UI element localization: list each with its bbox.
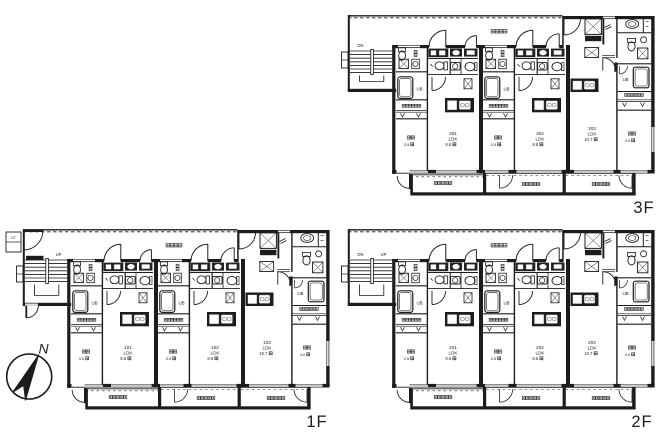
svg-text:1F: 1F	[306, 413, 327, 431]
svg-text:LDK: LDK	[536, 136, 546, 141]
svg-text:201: 201	[449, 345, 457, 350]
svg-text:4.0: 4.0	[625, 352, 631, 357]
svg-text:3.5: 3.5	[404, 356, 410, 361]
svg-text:3.5: 3.5	[166, 356, 172, 361]
svg-text:302: 302	[536, 131, 544, 136]
svg-text:LDK: LDK	[449, 136, 459, 141]
svg-text:101: 101	[124, 345, 132, 350]
svg-text:303: 303	[588, 126, 596, 131]
svg-text:UB: UB	[91, 301, 97, 306]
svg-text:10.7: 10.7	[259, 351, 268, 356]
svg-text:102: 102	[211, 345, 219, 350]
svg-text:LDK: LDK	[449, 350, 459, 355]
svg-text:4.0: 4.0	[300, 352, 306, 357]
svg-text:UT: UT	[11, 236, 17, 240]
svg-text:DN: DN	[357, 252, 363, 257]
svg-text:4.0: 4.0	[625, 138, 631, 143]
svg-text:N: N	[38, 341, 49, 357]
svg-text:UB: UB	[416, 87, 422, 92]
svg-text:LDK: LDK	[211, 350, 221, 355]
svg-text:UB: UB	[622, 291, 628, 296]
svg-text:DN: DN	[357, 43, 363, 48]
svg-text:LDK: LDK	[124, 350, 134, 355]
svg-text:2F: 2F	[631, 413, 652, 431]
svg-text:8.6: 8.6	[120, 356, 126, 361]
svg-text:UP: UP	[381, 252, 387, 257]
svg-text:UB: UB	[503, 87, 509, 92]
svg-text:UB: UB	[297, 291, 303, 296]
svg-text:103: 103	[263, 340, 271, 345]
svg-text:UB: UB	[503, 301, 509, 306]
svg-text:UB: UB	[178, 301, 184, 306]
svg-text:10.7: 10.7	[584, 137, 593, 142]
svg-text:LDK: LDK	[263, 345, 273, 350]
svg-text:301: 301	[449, 131, 457, 136]
svg-text:UB: UB	[416, 301, 422, 306]
svg-text:8.6: 8.6	[532, 142, 538, 147]
svg-text:3.5: 3.5	[79, 356, 85, 361]
svg-text:UP: UP	[56, 252, 62, 257]
svg-text:10.7: 10.7	[584, 351, 593, 356]
svg-text:8.6: 8.6	[532, 356, 538, 361]
svg-text:3.5: 3.5	[491, 142, 497, 147]
svg-text:LDK: LDK	[588, 345, 598, 350]
svg-text:3.5: 3.5	[491, 356, 497, 361]
svg-text:3.5: 3.5	[404, 142, 410, 147]
svg-text:203: 203	[588, 340, 596, 345]
svg-text:LDK: LDK	[588, 131, 598, 136]
svg-text:8.6: 8.6	[445, 356, 451, 361]
svg-text:LDK: LDK	[536, 350, 546, 355]
svg-text:UB: UB	[622, 77, 628, 82]
svg-text:8.6: 8.6	[445, 142, 451, 147]
svg-text:8.6: 8.6	[207, 356, 213, 361]
svg-text:202: 202	[536, 345, 544, 350]
svg-text:3F: 3F	[633, 199, 654, 217]
